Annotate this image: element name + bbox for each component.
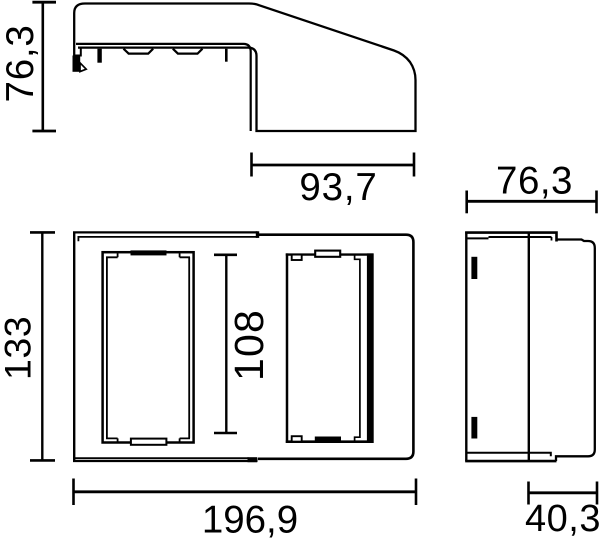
svg-text:133: 133 [0,316,39,380]
svg-text:93,7: 93,7 [299,166,377,209]
svg-text:76,3: 76,3 [0,24,42,102]
svg-text:196,9: 196,9 [202,499,298,542]
svg-text:108: 108 [226,309,272,381]
svg-text:40,3: 40,3 [525,498,600,540]
svg-text:76,3: 76,3 [496,160,573,203]
